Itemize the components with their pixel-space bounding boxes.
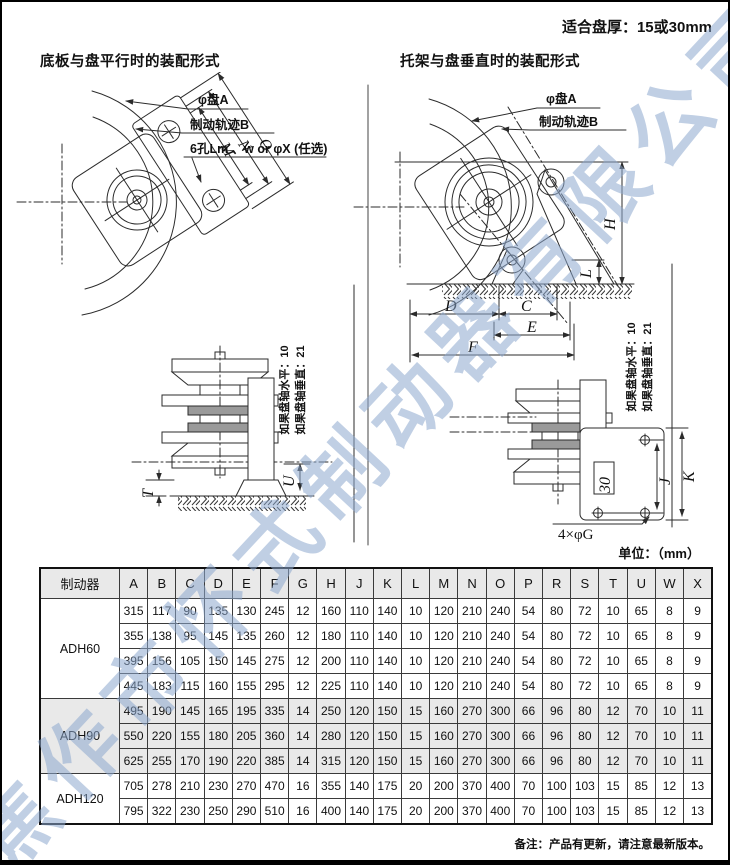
technical-drawings: M N O φ盘A 制动轨迹B 6孔Lm 、w or φX (任选) <box>2 72 730 567</box>
dimension-cell: 10 <box>599 599 627 624</box>
dimension-cell: 220 <box>232 749 260 774</box>
dim-label-u: U <box>281 474 298 487</box>
dimension-cell: 250 <box>204 799 232 825</box>
right-assembly-diagram: D C E F H L φ盘A 制动轨迹B <box>354 91 634 362</box>
dimension-cell: 270 <box>458 699 486 724</box>
dimension-cell: 180 <box>204 724 232 749</box>
dim-label-t: T <box>140 488 157 498</box>
dimension-cell: 210 <box>458 624 486 649</box>
dimension-table: 制动器ABCDEFGHJKLMNOPRSTUWX ADH603151179013… <box>39 567 713 825</box>
dimension-cell: 200 <box>430 774 458 799</box>
dimension-cell: 210 <box>458 599 486 624</box>
dimension-cell: 9 <box>684 624 712 649</box>
dimension-cell: 160 <box>204 674 232 699</box>
table-row: 5502201551802053601428012015015160270300… <box>40 724 712 749</box>
column-header: U <box>627 568 655 599</box>
table-row: 3951561051501452751220011014010120210240… <box>40 649 712 674</box>
dimension-cell: 12 <box>289 649 317 674</box>
dimension-cell: 11 <box>684 749 712 774</box>
dimension-cell: 175 <box>373 799 401 825</box>
dimension-cell: 322 <box>148 799 176 825</box>
dimension-cell: 278 <box>148 774 176 799</box>
dimension-cell: 315 <box>317 749 345 774</box>
dimension-cell: 140 <box>373 674 401 699</box>
dimension-cell: 120 <box>345 699 373 724</box>
dimension-cell: 65 <box>627 674 655 699</box>
dimension-cell: 12 <box>289 599 317 624</box>
dimension-cell: 12 <box>655 799 683 825</box>
dimension-cell: 140 <box>373 624 401 649</box>
dimension-cell: 135 <box>204 599 232 624</box>
dimension-cell: 10 <box>599 674 627 699</box>
table-row: 6252551701902203851431512015015160270300… <box>40 749 712 774</box>
dimension-cell: 510 <box>261 799 289 825</box>
dimension-cell: 180 <box>317 624 345 649</box>
dimension-cell: 140 <box>373 599 401 624</box>
dimension-cell: 117 <box>148 599 176 624</box>
dimension-cell: 795 <box>120 799 148 825</box>
dimension-cell: 54 <box>514 599 542 624</box>
dimension-cell: 140 <box>345 799 373 825</box>
dimension-cell: 20 <box>402 799 430 825</box>
dimension-cell: 135 <box>232 624 260 649</box>
dimension-cell: 160 <box>317 599 345 624</box>
dimension-cell: 160 <box>430 749 458 774</box>
dimension-cell: 240 <box>486 624 514 649</box>
dimension-cell: 9 <box>684 599 712 624</box>
column-header-model: 制动器 <box>40 568 120 599</box>
dimension-cell: 165 <box>204 699 232 724</box>
dimension-cell: 15 <box>402 699 430 724</box>
dimension-cell: 13 <box>684 774 712 799</box>
dimension-cell: 370 <box>458 799 486 825</box>
dimension-cell: 80 <box>543 674 571 699</box>
column-header: M <box>430 568 458 599</box>
dimension-cell: 155 <box>176 724 204 749</box>
callout-track-b: 制动轨迹B <box>539 114 598 129</box>
dimension-cell: 105 <box>176 649 204 674</box>
dimension-cell: 96 <box>543 724 571 749</box>
dimension-cell: 240 <box>486 649 514 674</box>
callout-track-b: 制动轨迹B <box>190 117 249 132</box>
table-row: ADH6031511790135130245121601101401012021… <box>40 599 712 624</box>
dimension-cell: 220 <box>148 724 176 749</box>
dimension-cell: 205 <box>232 724 260 749</box>
column-header: J <box>345 568 373 599</box>
left-diagram-title: 底板与盘平行时的装配形式 <box>40 50 220 71</box>
dim-label-30: 30 <box>597 477 614 494</box>
dimension-cell: 15 <box>402 724 430 749</box>
dimension-cell: 72 <box>571 674 599 699</box>
column-header: E <box>232 568 260 599</box>
left-assembly-diagram: M N O φ盘A 制动轨迹B 6孔Lm 、w or φX (任选) <box>17 72 327 315</box>
dimension-cell: 103 <box>571 799 599 825</box>
dimension-cell: 9 <box>684 674 712 699</box>
dimension-cell: 170 <box>176 749 204 774</box>
column-header: G <box>289 568 317 599</box>
dimension-cell: 190 <box>204 749 232 774</box>
dimension-cell: 96 <box>543 749 571 774</box>
dimension-cell: 225 <box>317 674 345 699</box>
column-header: T <box>599 568 627 599</box>
dimension-cell: 200 <box>430 799 458 825</box>
dimension-cell: 15 <box>599 799 627 825</box>
dimension-cell: 12 <box>599 749 627 774</box>
dimension-cell: 9 <box>684 649 712 674</box>
dimension-cell: 80 <box>571 724 599 749</box>
dimension-cell: 11 <box>684 699 712 724</box>
dimension-cell: 160 <box>430 724 458 749</box>
dim-label-h: H <box>602 217 619 231</box>
dimension-cell: 8 <box>655 624 683 649</box>
dimension-cell: 355 <box>120 624 148 649</box>
callout-holes: 6孔Lm 、w or φX (任选) <box>190 141 327 156</box>
axis-note-vertical: 如果盘轴垂直：21 <box>293 345 307 434</box>
dim-label-k: K <box>681 470 698 483</box>
axis-note-horizontal: 如果盘轴水平：10 <box>277 345 291 434</box>
table-row: 3551389514513526012180110140101202102405… <box>40 624 712 649</box>
revision-note: 备注：产品有更新，请注意最新版本。 <box>515 836 711 852</box>
dimension-cell: 72 <box>571 624 599 649</box>
dimension-cell: 11 <box>684 724 712 749</box>
column-header: R <box>543 568 571 599</box>
dimension-cell: 10 <box>655 749 683 774</box>
datasheet-page: 适合盘厚：15或30mm 底板与盘平行时的装配形式 托架与盘垂直时的装配形式 焦… <box>0 0 730 865</box>
dimension-cell: 103 <box>571 774 599 799</box>
dim-label-c: C <box>521 298 532 315</box>
model-cell: ADH60 <box>40 599 120 699</box>
dimension-cell: 138 <box>148 624 176 649</box>
dimension-cell: 270 <box>232 774 260 799</box>
dimension-cell: 360 <box>261 724 289 749</box>
dimension-cell: 20 <box>402 774 430 799</box>
dimension-cell: 10 <box>402 599 430 624</box>
dimension-cell: 156 <box>148 649 176 674</box>
dimension-cell: 85 <box>627 774 655 799</box>
dim-label-f: F <box>467 339 478 356</box>
dimension-cell: 550 <box>120 724 148 749</box>
table-row: ADH9049519014516519533514250120150151602… <box>40 699 712 724</box>
dimension-cell: 66 <box>514 724 542 749</box>
dimension-cell: 12 <box>599 699 627 724</box>
dimension-cell: 395 <box>120 649 148 674</box>
dimension-cell: 295 <box>261 674 289 699</box>
dimension-cell: 14 <box>289 724 317 749</box>
dimension-cell: 10 <box>655 699 683 724</box>
dimension-cell: 145 <box>204 624 232 649</box>
dimension-cell: 72 <box>571 599 599 624</box>
dimension-cell: 15 <box>599 774 627 799</box>
column-header: L <box>402 568 430 599</box>
dimension-cell: 66 <box>514 749 542 774</box>
dimension-cell: 250 <box>317 699 345 724</box>
column-header: O <box>486 568 514 599</box>
column-header: K <box>373 568 401 599</box>
dimension-cell: 385 <box>261 749 289 774</box>
dimension-cell: 240 <box>486 674 514 699</box>
table-row: 4451831151601552951222511014010120210240… <box>40 674 712 699</box>
dimension-cell: 260 <box>261 624 289 649</box>
dimension-cell: 370 <box>458 774 486 799</box>
dimension-cell: 300 <box>486 749 514 774</box>
dimension-cell: 15 <box>402 749 430 774</box>
dimension-cell: 190 <box>148 699 176 724</box>
column-header: B <box>148 568 176 599</box>
dimension-cell: 335 <box>261 699 289 724</box>
dimension-cell: 80 <box>571 749 599 774</box>
dimension-cell: 100 <box>543 799 571 825</box>
model-cell: ADH90 <box>40 699 120 774</box>
dimension-cell: 240 <box>486 599 514 624</box>
dimension-cell: 110 <box>345 624 373 649</box>
dimension-cell: 210 <box>458 674 486 699</box>
axis-note-vertical: 如果盘轴垂直：21 <box>640 322 654 411</box>
dimension-cell: 120 <box>430 674 458 699</box>
dimension-cell: 290 <box>232 799 260 825</box>
column-header: S <box>571 568 599 599</box>
dimension-cell: 145 <box>176 699 204 724</box>
dimension-cell: 230 <box>204 774 232 799</box>
dimension-cell: 16 <box>289 799 317 825</box>
dimension-cell: 54 <box>514 674 542 699</box>
table-header: 制动器ABCDEFGHJKLMNOPRSTUWX <box>40 568 712 599</box>
dimension-cell: 140 <box>373 649 401 674</box>
dimension-cell: 8 <box>655 674 683 699</box>
dimension-cell: 120 <box>430 624 458 649</box>
dimension-cell: 160 <box>430 699 458 724</box>
dimension-cell: 12 <box>655 774 683 799</box>
dimension-cell: 150 <box>373 699 401 724</box>
dimension-cell: 16 <box>289 774 317 799</box>
left-side-view: T U 如果盘轴水平：10 如果盘轴垂直：21 <box>132 285 354 542</box>
dimension-cell: 12 <box>599 724 627 749</box>
dimension-cell: 10 <box>402 674 430 699</box>
dimension-cell: 195 <box>232 699 260 724</box>
dimension-cell: 315 <box>120 599 148 624</box>
column-header: D <box>204 568 232 599</box>
column-header: A <box>120 568 148 599</box>
dimension-cell: 280 <box>317 724 345 749</box>
dimension-cell: 110 <box>345 674 373 699</box>
column-header: C <box>176 568 204 599</box>
dimension-cell: 270 <box>458 724 486 749</box>
dimension-cell: 85 <box>627 799 655 825</box>
dimension-cell: 155 <box>232 674 260 699</box>
dimension-cell: 80 <box>543 624 571 649</box>
dimension-cell: 145 <box>232 649 260 674</box>
dimension-cell: 130 <box>232 599 260 624</box>
dimension-cell: 10 <box>402 624 430 649</box>
dimension-cell: 355 <box>317 774 345 799</box>
dimension-cell: 625 <box>120 749 148 774</box>
dimension-cell: 65 <box>627 649 655 674</box>
dimension-cell: 150 <box>204 649 232 674</box>
dimension-cell: 70 <box>627 749 655 774</box>
dimension-cell: 66 <box>514 699 542 724</box>
dimension-cell: 95 <box>176 624 204 649</box>
dimension-cell: 8 <box>655 599 683 624</box>
dimension-cell: 495 <box>120 699 148 724</box>
dimension-cell: 245 <box>261 599 289 624</box>
dimension-cell: 120 <box>345 749 373 774</box>
dim-label-l: L <box>578 269 595 279</box>
dimension-cell: 300 <box>486 699 514 724</box>
dimension-cell: 110 <box>345 599 373 624</box>
dimension-cell: 705 <box>120 774 148 799</box>
column-header: P <box>514 568 542 599</box>
model-cell: ADH120 <box>40 774 120 825</box>
dimension-cell: 12 <box>289 624 317 649</box>
axis-note-horizontal: 如果盘轴水平：10 <box>624 322 638 411</box>
dimension-cell: 210 <box>458 649 486 674</box>
right-side-view: 30 J K 4×φG 如果盘轴水平：10 如果盘轴垂直：21 <box>450 264 698 543</box>
dimension-cell: 13 <box>684 799 712 825</box>
dimension-cell: 300 <box>486 724 514 749</box>
dimension-cell: 54 <box>514 624 542 649</box>
dimension-cell: 255 <box>148 749 176 774</box>
dimension-cell: 70 <box>627 724 655 749</box>
dimension-cell: 70 <box>514 774 542 799</box>
dimension-cell: 400 <box>486 799 514 825</box>
dimension-cell: 100 <box>543 774 571 799</box>
callout-4xg: 4×φG <box>558 527 594 543</box>
dimension-cell: 10 <box>599 624 627 649</box>
column-header: H <box>317 568 345 599</box>
dimension-cell: 120 <box>345 724 373 749</box>
dimension-cell: 10 <box>655 724 683 749</box>
dimension-cell: 183 <box>148 674 176 699</box>
dimension-cell: 70 <box>627 699 655 724</box>
callout-disc-a: φ盘A <box>546 91 576 106</box>
dimension-cell: 80 <box>543 599 571 624</box>
dimension-cell: 275 <box>261 649 289 674</box>
column-header: X <box>684 568 712 599</box>
dimension-cell: 10 <box>599 649 627 674</box>
disc-thickness-note: 适合盘厚：15或30mm <box>562 16 712 37</box>
dimension-cell: 70 <box>514 799 542 825</box>
dim-label-j: J <box>657 477 674 485</box>
dimension-cell: 115 <box>176 674 204 699</box>
table-row: 7953222302502905101640014017520200370400… <box>40 799 712 825</box>
dimension-cell: 200 <box>317 649 345 674</box>
dimension-cell: 470 <box>261 774 289 799</box>
dimension-cell: 120 <box>430 599 458 624</box>
right-diagram-title: 托架与盘垂直时的装配形式 <box>400 50 580 71</box>
dimension-cell: 175 <box>373 774 401 799</box>
dimension-cell: 90 <box>176 599 204 624</box>
dimension-cell: 400 <box>486 774 514 799</box>
dimension-cell: 140 <box>345 774 373 799</box>
dimension-cell: 80 <box>543 649 571 674</box>
column-header: F <box>261 568 289 599</box>
table-row: ADH1207052782102302704701635514017520200… <box>40 774 712 799</box>
dimension-cell: 10 <box>402 649 430 674</box>
dim-label-d: D <box>444 298 457 315</box>
dimension-cell: 8 <box>655 649 683 674</box>
dimension-cell: 96 <box>543 699 571 724</box>
dimension-cell: 54 <box>514 649 542 674</box>
callout-disc-a: φ盘A <box>198 92 228 107</box>
dimension-cell: 80 <box>571 699 599 724</box>
dimension-cell: 14 <box>289 749 317 774</box>
column-header: W <box>655 568 683 599</box>
dimension-cell: 65 <box>627 624 655 649</box>
dimension-cell: 150 <box>373 749 401 774</box>
dimension-cell: 72 <box>571 649 599 674</box>
dimension-cell: 14 <box>289 699 317 724</box>
dimension-cell: 120 <box>430 649 458 674</box>
dimension-cell: 110 <box>345 649 373 674</box>
column-header: N <box>458 568 486 599</box>
dimension-cell: 270 <box>458 749 486 774</box>
dimension-cell: 210 <box>176 774 204 799</box>
dimension-cell: 150 <box>373 724 401 749</box>
dimension-cell: 400 <box>317 799 345 825</box>
dimension-cell: 65 <box>627 599 655 624</box>
dimension-cell: 445 <box>120 674 148 699</box>
dimension-cell: 12 <box>289 674 317 699</box>
dim-label-e: E <box>526 319 537 336</box>
dimension-cell: 230 <box>176 799 204 825</box>
